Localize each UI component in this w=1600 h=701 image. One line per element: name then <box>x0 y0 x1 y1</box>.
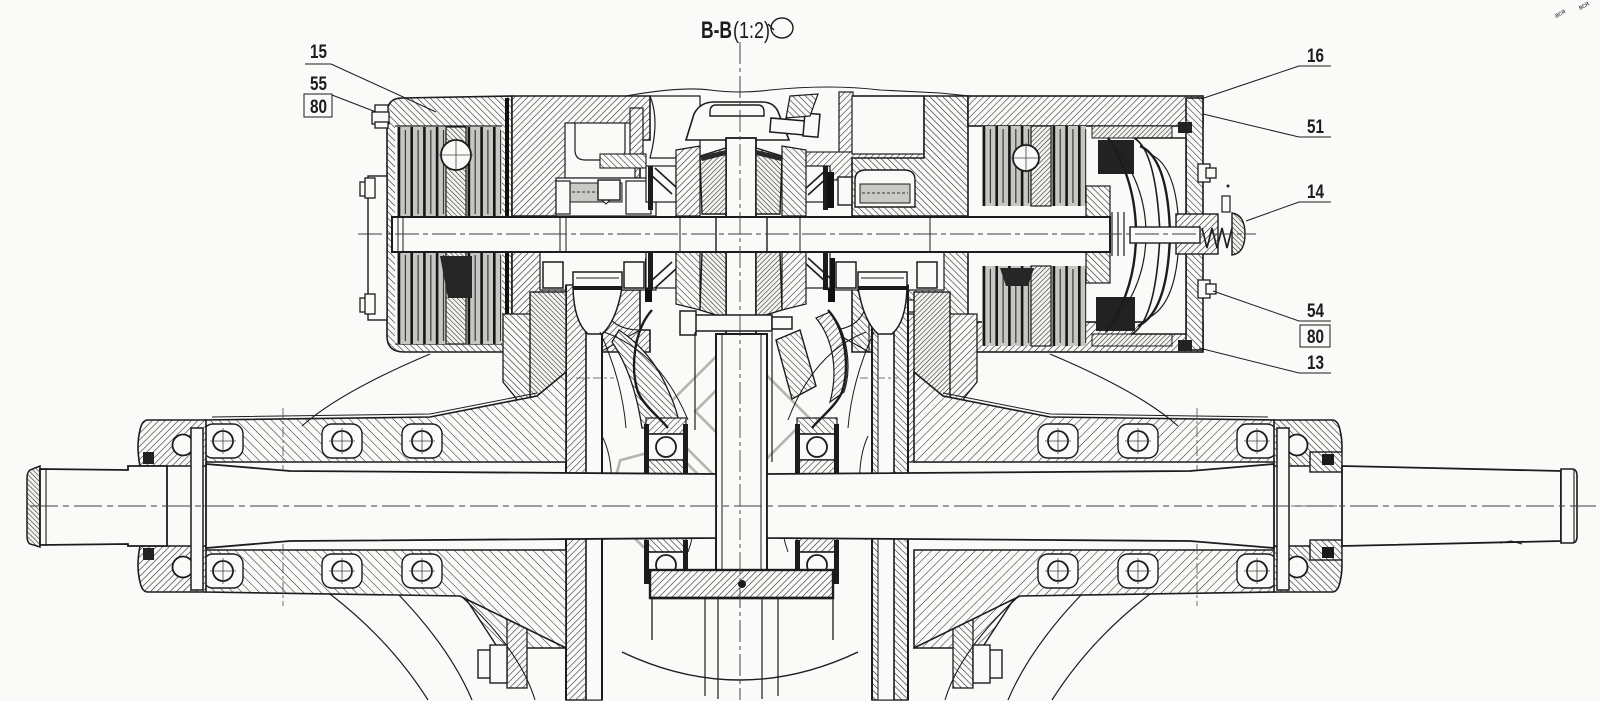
svg-text:(1:2): (1:2) <box>733 17 770 43</box>
svg-text:54: 54 <box>1307 301 1324 322</box>
svg-text:55: 55 <box>310 74 327 95</box>
svg-text:16: 16 <box>1307 46 1324 67</box>
svg-text:51: 51 <box>1307 117 1324 138</box>
svg-text:14: 14 <box>1307 182 1324 203</box>
svg-text:80: 80 <box>1307 327 1324 348</box>
svg-text:80: 80 <box>310 97 327 118</box>
svg-text:15: 15 <box>310 42 327 63</box>
svg-text:B-B: B-B <box>701 17 732 44</box>
svg-text:13: 13 <box>1307 353 1324 374</box>
